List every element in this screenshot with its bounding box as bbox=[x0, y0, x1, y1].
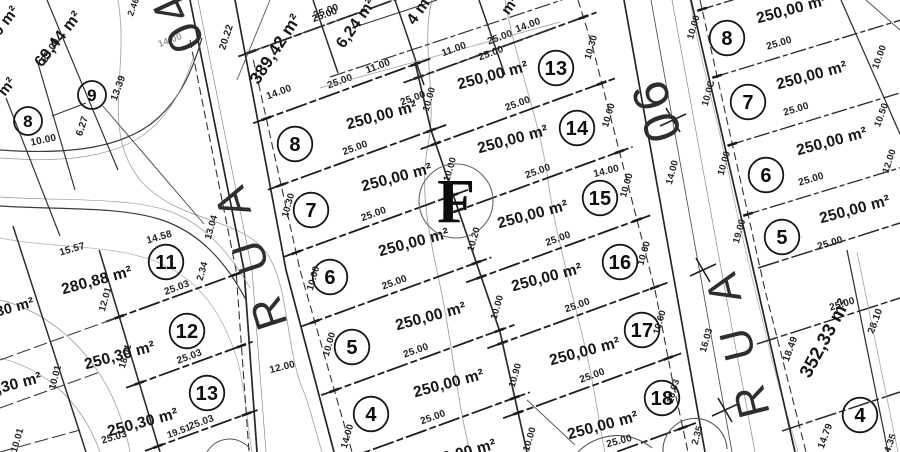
svg-text:12: 12 bbox=[176, 321, 199, 343]
svg-text:5: 5 bbox=[346, 337, 357, 359]
svg-text:11: 11 bbox=[155, 252, 177, 274]
svg-text:8: 8 bbox=[23, 112, 33, 131]
svg-text:4: 4 bbox=[854, 405, 866, 427]
svg-text:13: 13 bbox=[196, 383, 219, 405]
svg-text:6: 6 bbox=[324, 267, 335, 289]
svg-text:7: 7 bbox=[305, 200, 316, 222]
svg-text:15: 15 bbox=[589, 188, 612, 210]
svg-text:9: 9 bbox=[87, 86, 97, 105]
svg-text:14: 14 bbox=[566, 118, 589, 140]
svg-text:F: F bbox=[437, 168, 475, 236]
svg-text:4: 4 bbox=[365, 404, 377, 426]
svg-text:13: 13 bbox=[545, 58, 568, 80]
svg-text:5: 5 bbox=[776, 227, 787, 249]
svg-text:7: 7 bbox=[742, 92, 753, 114]
svg-text:8: 8 bbox=[289, 134, 300, 156]
svg-text:17: 17 bbox=[631, 320, 654, 342]
svg-text:16: 16 bbox=[609, 252, 632, 274]
svg-text:8: 8 bbox=[721, 28, 732, 50]
svg-text:6: 6 bbox=[760, 165, 771, 187]
